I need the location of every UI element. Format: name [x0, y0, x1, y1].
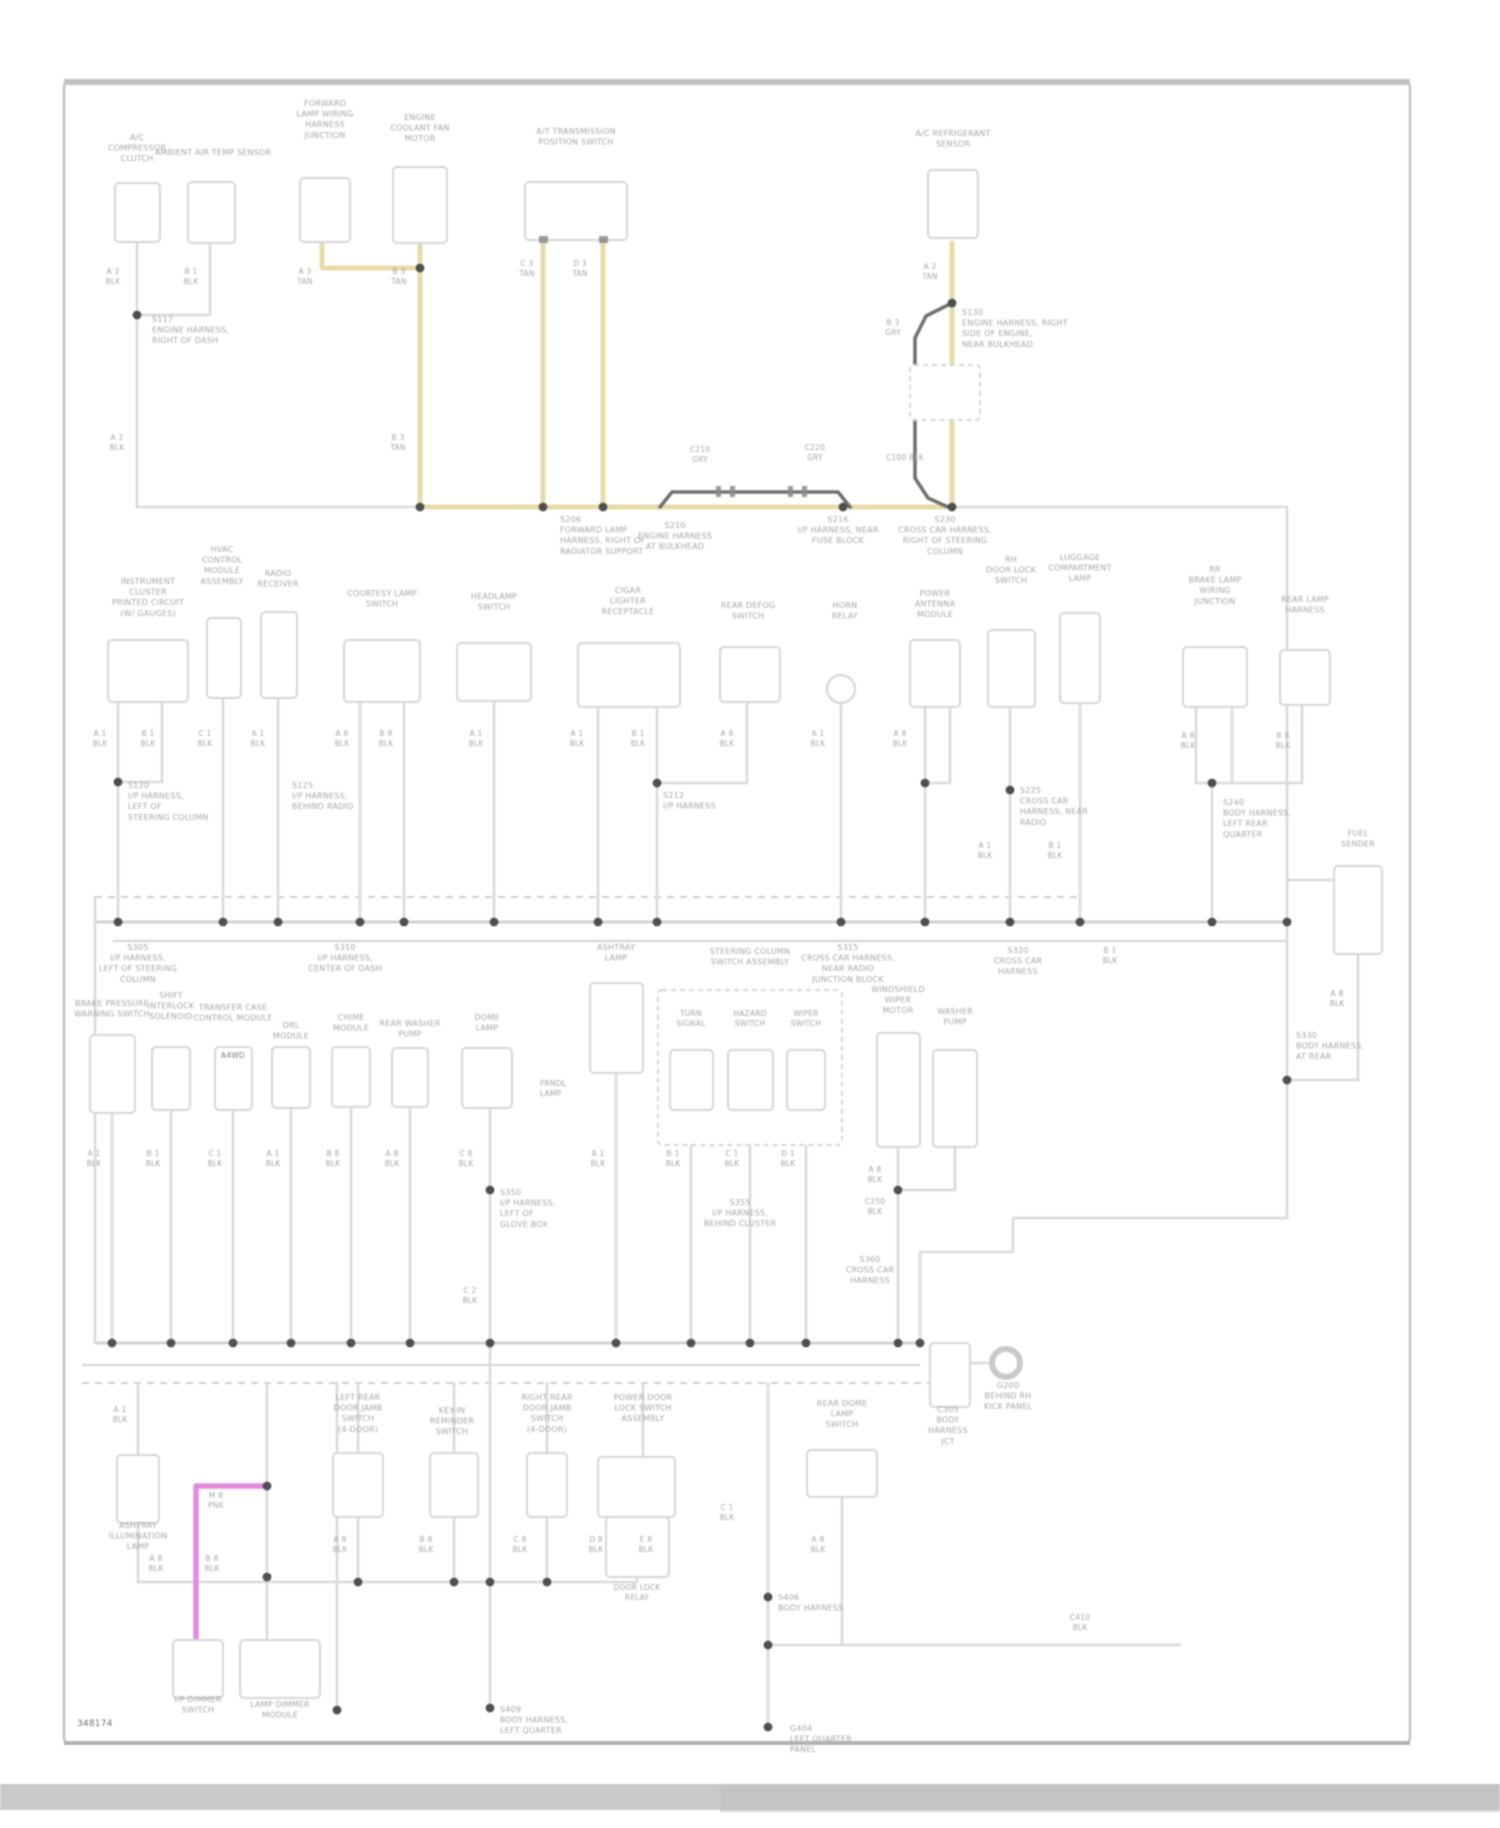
diagram-label: G404LEFT QUARTERPANEL	[790, 1724, 852, 1754]
diagram-label: 348174	[77, 1719, 113, 1729]
connector-dashed-box	[910, 365, 980, 420]
component-box	[240, 1640, 320, 1698]
diagram-label: AMBIENT AIR TEMP SENSOR	[155, 148, 272, 157]
diagram-label: REAR DOMELAMPSWITCH	[817, 1399, 867, 1429]
diagram-label: C210GRY	[690, 445, 710, 464]
diagram-label: B 1BLK	[146, 1149, 162, 1168]
diagram-label: RHDOOR LOCKSWITCH	[986, 555, 1037, 585]
diagram-label: B 1BLK	[666, 1149, 682, 1168]
component-box	[598, 1457, 675, 1517]
diagram-label: A 1BLK	[87, 1149, 103, 1168]
diagram-label: B 8BLK	[205, 1554, 221, 1573]
component-box	[457, 643, 531, 701]
junction-dot	[219, 918, 228, 927]
diagram-label: S320CROSS CARHARNESS	[994, 946, 1043, 976]
junction-dot	[539, 503, 548, 512]
junction-dot	[356, 918, 365, 927]
component-box	[117, 1455, 159, 1523]
diagram-label: S117ENGINE HARNESS,RIGHT OF DASH	[152, 315, 229, 345]
wire-magenta	[196, 1486, 267, 1640]
diagram-label: TURNSIGNAL	[677, 1009, 707, 1028]
component-box	[173, 1640, 223, 1698]
diagram-label: DRLMODULE	[273, 1021, 309, 1041]
junction-dot	[287, 1339, 296, 1348]
diagram-label: M 8PNK	[208, 1491, 225, 1510]
diagram-label: CHIMEMODULE	[333, 1013, 369, 1033]
diagram-label: B 8BLK	[419, 1535, 435, 1554]
diagram-label: WINDSHIELDWIPERMOTOR	[871, 985, 925, 1015]
diagram-label: A/C REFRIGERANTSENSOR	[915, 129, 990, 149]
diagram-label: C 1BLK	[208, 1149, 224, 1168]
diagram-label: B 1BLK	[631, 729, 647, 748]
diagram-label: A 2BLK	[110, 433, 126, 452]
diagram-label: G200BEHIND RHKICK PANEL	[984, 1381, 1033, 1411]
diagram-label: A 8BLK	[149, 1554, 165, 1573]
component-box	[1060, 613, 1100, 703]
diagram-label: A 1BLK	[469, 729, 485, 748]
diagram-label: A 3TAN	[296, 267, 312, 286]
junction-dot	[837, 918, 846, 927]
wire-gray	[898, 1147, 955, 1190]
diagram-label: B 1BLK	[141, 729, 157, 748]
diagram-label: A 2BLK	[106, 267, 122, 286]
diagram-label: A 1BLK	[113, 1405, 129, 1424]
diagram-label: I/P DIMMERSWITCH	[174, 1695, 222, 1715]
diagram-label: B 8BLK	[1276, 731, 1292, 750]
component-box	[392, 1048, 428, 1107]
component-box	[1280, 650, 1330, 705]
diagram-label: C 8BLK	[513, 1535, 529, 1554]
junction-dot	[612, 1339, 621, 1348]
scan-artifact-band	[720, 1784, 1500, 1812]
component-box	[152, 1047, 190, 1110]
junction-dot	[921, 779, 930, 788]
diagram-label: S130ENGINE HARNESS, RIGHTSIDE OF ENGINE,…	[962, 308, 1068, 349]
diagram-label: ASHTRAYILLUMINATIONLAMP	[109, 1521, 168, 1551]
diagram-label: C220GRY	[805, 443, 825, 462]
junction-dot	[108, 1339, 117, 1348]
component-box	[108, 640, 188, 702]
junction-dot	[333, 1706, 342, 1715]
diagram-label: REAR LAMPHARNESS	[1281, 595, 1329, 615]
diagram-label: C410BLK	[1070, 1613, 1090, 1632]
diagram-label: A 1BLK	[93, 729, 109, 748]
component-box	[430, 1453, 478, 1517]
junction-dot	[114, 778, 123, 787]
diagram-label: A 1BLK	[978, 841, 994, 860]
diagram-label: REAR DEFOGSWITCH	[721, 601, 776, 621]
junction-dot	[1283, 1076, 1292, 1085]
inline-connector-mark	[802, 486, 807, 497]
junction-dot	[653, 779, 662, 788]
inline-connector-mark	[539, 236, 548, 243]
junction-dot	[687, 1339, 696, 1348]
ground-ring	[992, 1349, 1020, 1377]
component-box	[606, 1517, 669, 1577]
component-box	[590, 983, 643, 1073]
junction-dot	[263, 1482, 272, 1491]
diagram-label: INSTRUMENTCLUSTERPRINTED CIRCUIT(W/ GAUG…	[112, 577, 184, 618]
wiring-diagram-page: A/CCOMPRESSORCLUTCHAMBIENT AIR TEMP SENS…	[0, 0, 1500, 1828]
diagram-label: FUELSENDER	[1341, 829, 1375, 849]
component-box	[928, 170, 978, 238]
diagram-label: TRANSFER CASECONTROL MODULE	[193, 1003, 272, 1023]
diagram-label: A 8BLK	[385, 1149, 401, 1168]
junction-dot	[347, 1339, 356, 1348]
wire-gray	[925, 707, 950, 783]
diagram-label: B 3TAN	[389, 433, 405, 452]
diagram-label: A 8BLK	[333, 1535, 349, 1554]
diagram-label: WIPERSWITCH	[791, 1009, 822, 1028]
component-box	[333, 1453, 383, 1517]
component-box	[344, 640, 420, 702]
component-box	[90, 1035, 135, 1113]
diagram-label: S216I/P HARNESS, NEARFUSE BLOCK	[797, 515, 878, 545]
junction-dot	[1208, 918, 1217, 927]
junction-dot	[802, 1339, 811, 1348]
junction-dot	[486, 1339, 495, 1348]
diagram-label: A 8BLK	[811, 1535, 827, 1554]
junction-dot	[1006, 786, 1015, 795]
diagram-label: S355I/P HARNESS,BEHIND CLUSTER	[704, 1198, 777, 1228]
diagram-label: A 8BLK	[868, 1165, 884, 1184]
junction-dot	[263, 1573, 272, 1582]
wire-gray	[137, 243, 210, 315]
junction-dot	[839, 503, 848, 512]
component-box	[670, 1050, 713, 1110]
diagram-label: LEFT REARDOOR JAMBSWITCH(4-DOOR)	[334, 1393, 383, 1434]
junction-dot	[599, 503, 608, 512]
junction-dot	[1076, 918, 1085, 927]
junction-dot	[114, 918, 123, 927]
diagram-label: POWER DOORLOCK SWITCHASSEMBLY	[614, 1393, 673, 1423]
junction-dot	[764, 1723, 773, 1732]
junction-dot	[894, 1186, 903, 1195]
inline-connector-mark	[716, 486, 721, 497]
diagram-label: A 1BLK	[570, 729, 586, 748]
diagram-label: C 1BLK	[720, 1503, 736, 1522]
diagram-label: DOMELAMP	[474, 1013, 499, 1033]
diagram-label: C 1BLK	[725, 1149, 741, 1168]
component-box	[115, 183, 160, 242]
component-box	[525, 182, 627, 240]
junction-dot	[921, 918, 930, 927]
component-box	[393, 167, 447, 243]
diagram-label: A 1BLK	[251, 729, 267, 748]
component-box	[728, 1050, 773, 1110]
diagram-label: DOOR LOCKRELAY	[614, 1583, 662, 1602]
junction-dot	[416, 264, 425, 273]
diagram-label: A 8BLK	[720, 729, 736, 748]
diagram-label: S406BODY HARNESS	[778, 1593, 843, 1613]
diagram-label: B 1BLK	[1103, 946, 1119, 965]
junction-dot	[400, 918, 409, 927]
component-box	[930, 1343, 970, 1407]
diagram-label: S120I/P HARNESS,LEFT OFSTEERING COLUMN	[128, 781, 208, 822]
diagram-label: C100 BLK	[886, 453, 925, 462]
junction-dot	[543, 1578, 552, 1587]
diagram-label: A 2TAN	[921, 262, 937, 281]
inline-connector-mark	[599, 236, 608, 243]
diagram-label: B 1BLK	[1048, 841, 1064, 860]
diagram-label: HVACCONTROLMODULEASSEMBLY	[201, 545, 244, 586]
diagram-label: BRAKE PRESSUREWARNING SWITCH	[74, 999, 150, 1019]
junction-dot	[416, 503, 425, 512]
diagram-label: LUGGAGECOMPARTMENTLAMP	[1048, 553, 1111, 583]
diagram-label: ENGINECOOLANT FANMOTOR	[390, 113, 449, 143]
junction-dot	[653, 918, 662, 927]
diagram-label: KEY-INREMINDERSWITCH	[430, 1406, 474, 1436]
diagram-label: FORWARDLAMP WIRINGHARNESSJUNCTION	[297, 99, 354, 140]
junction-dot	[746, 1339, 755, 1348]
junction-dot	[764, 1593, 773, 1602]
diagram-label: D 3TAN	[571, 259, 587, 278]
diagram-label: S409BODY HARNESS,LEFT QUARTER	[500, 1705, 568, 1735]
junction-dot	[1208, 779, 1217, 788]
component-box	[332, 1047, 370, 1107]
wire-gray	[952, 507, 1287, 1080]
diagram-label: LAMP DIMMERMODULE	[250, 1700, 310, 1720]
diagram-label: A4WD	[221, 1051, 245, 1060]
diagram-label: A 8BLK	[1330, 989, 1346, 1008]
component-box	[787, 1050, 825, 1110]
wire-gray	[768, 1497, 842, 1645]
diagram-label: CIGARLIGHTERRECEPTACLE	[602, 586, 655, 616]
junction-dot	[133, 311, 142, 320]
junction-dot	[167, 1339, 176, 1348]
junction-dot	[354, 1578, 363, 1587]
diagram-label: S310I/P HARNESS,CENTER OF DASH	[308, 943, 382, 973]
diagram-label: C 1BLK	[198, 729, 214, 748]
inline-connector-mark	[730, 486, 735, 497]
diagram-label: B 3TAN	[390, 267, 406, 286]
diagram-label: C305BODYHARNESSJCT	[928, 1405, 968, 1446]
component-box	[578, 643, 680, 707]
diagram-label: S210ENGINE HARNESSAT BULKHEAD	[638, 521, 712, 551]
diagram-label: C 8BLK	[459, 1149, 475, 1168]
diagram-label: REAR WASHERPUMP	[379, 1019, 440, 1039]
diagram-label: A 1BLK	[591, 1149, 607, 1168]
component-box	[877, 1033, 920, 1147]
component-box	[300, 178, 350, 242]
junction-dot	[274, 918, 283, 927]
wire-tan	[322, 242, 420, 268]
diagram-label: C250BLK	[865, 1197, 885, 1216]
junction-dot	[948, 299, 957, 308]
diagram-label: HEADLAMPSWITCH	[471, 592, 517, 612]
diagram-label: D 1BLK	[781, 1149, 797, 1168]
diagram-label: SHIFTINTERLOCKSOLENOID	[148, 991, 195, 1021]
component-box	[527, 1453, 567, 1517]
diagram-label: B 1BLK	[184, 267, 200, 286]
diagram-label: STEERING COLUMNSWITCH ASSEMBLY	[710, 947, 790, 967]
diagram-label: C 2BLK	[463, 1286, 479, 1305]
junction-dot	[1006, 918, 1015, 927]
diagram-label: ASHTRAYLAMP	[597, 943, 635, 963]
junction-dot	[406, 1339, 415, 1348]
junction-dot	[486, 1578, 495, 1587]
component-box	[188, 182, 235, 243]
junction-dot	[229, 1339, 238, 1348]
component-circle	[827, 675, 855, 703]
diagram-label: HORNRELAY	[832, 601, 858, 621]
diagram-label: S305I/P HARNESS,LEFT OF STEERINGCOLUMN	[99, 943, 177, 984]
diagram-label: C 3TAN	[518, 259, 534, 278]
component-box	[261, 612, 297, 698]
component-box	[462, 1048, 512, 1108]
junction-dot	[594, 918, 603, 927]
component-box	[988, 630, 1035, 707]
diagram-label: RRBRAKE LAMPWIRINGJUNCTION	[1189, 565, 1242, 606]
diagram-label: A 8BLK	[1181, 731, 1197, 750]
component-box	[933, 1050, 977, 1147]
diagram-label: S206FORWARD LAMPHARNESS, RIGHT OFRADIATO…	[560, 515, 645, 556]
junction-dot	[948, 503, 957, 512]
diagram-label: E 8BLK	[639, 1535, 655, 1554]
diagram-label: B 3GRY	[885, 318, 901, 337]
diagram-label: S212I/P HARNESS	[663, 791, 716, 811]
component-box	[272, 1047, 310, 1108]
diagram-label: RIGHT REARDOOR JAMBSWITCH(4-DOOR)	[521, 1393, 572, 1434]
diagram-label: S330BODY HARNESS,AT REAR	[1296, 1031, 1364, 1061]
diagram-label: A 8BLK	[893, 729, 909, 748]
diagram-label: D 8BLK	[589, 1535, 605, 1554]
diagram-label: RADIORECEIVER	[257, 569, 299, 589]
diagram-label: PRNDLLAMP	[540, 1079, 567, 1098]
diagram-label: S360CROSS CARHARNESS	[846, 1255, 895, 1285]
junction-dot	[486, 1186, 495, 1195]
diagram-label: B 8BLK	[326, 1149, 342, 1168]
junction-dot	[1283, 918, 1292, 927]
diagram-label: HAZARDSWITCH	[733, 1009, 766, 1028]
diagram-label: A 8BLK	[335, 729, 351, 748]
diagram-label: WASHERPUMP	[937, 1007, 973, 1027]
component-box	[207, 618, 241, 698]
diagram-label: S315CROSS CAR HARNESS,NEAR RADIOJUNCTION…	[801, 943, 895, 984]
diagram-label: A 1BLK	[266, 1149, 282, 1168]
junction-dot	[486, 1704, 495, 1713]
junction-dot	[764, 1641, 773, 1650]
junction-dot	[894, 1339, 903, 1348]
diagram-label: A 1BLK	[811, 729, 827, 748]
junction-dot	[916, 1339, 925, 1348]
diagram-label: S350I/P HARNESS,LEFT OFGLOVE BOX	[500, 1188, 556, 1229]
diagram-label: B 8BLK	[379, 729, 395, 748]
diagram-label: COURTESY LAMPSWITCH	[347, 589, 417, 609]
component-box	[807, 1450, 877, 1497]
diagram-label: S125I/P HARNESS,BEHIND RADIO	[292, 781, 354, 811]
diagram-label: A/T TRANSMISSIONPOSITION SWITCH	[536, 127, 616, 147]
component-box	[1183, 647, 1247, 707]
component-box	[720, 647, 780, 702]
diagram-label: S230CROSS CAR HARNESS,RIGHT OF STEERINGC…	[898, 515, 992, 556]
diagram-label: POWERANTENNAMODULE	[915, 589, 956, 619]
diagram-label: S240BODY HARNESS,LEFT REARQUARTER	[1223, 798, 1291, 839]
junction-dot	[490, 918, 499, 927]
diagram-label: S225CROSS CARHARNESS, NEARRADIO	[1020, 786, 1088, 827]
component-box	[910, 640, 960, 707]
junction-dot	[450, 1578, 459, 1587]
component-box	[1334, 866, 1382, 954]
inline-connector-mark	[788, 486, 793, 497]
ground-distribution-diagram: A/CCOMPRESSORCLUTCHAMBIENT AIR TEMP SENS…	[0, 0, 1500, 1828]
